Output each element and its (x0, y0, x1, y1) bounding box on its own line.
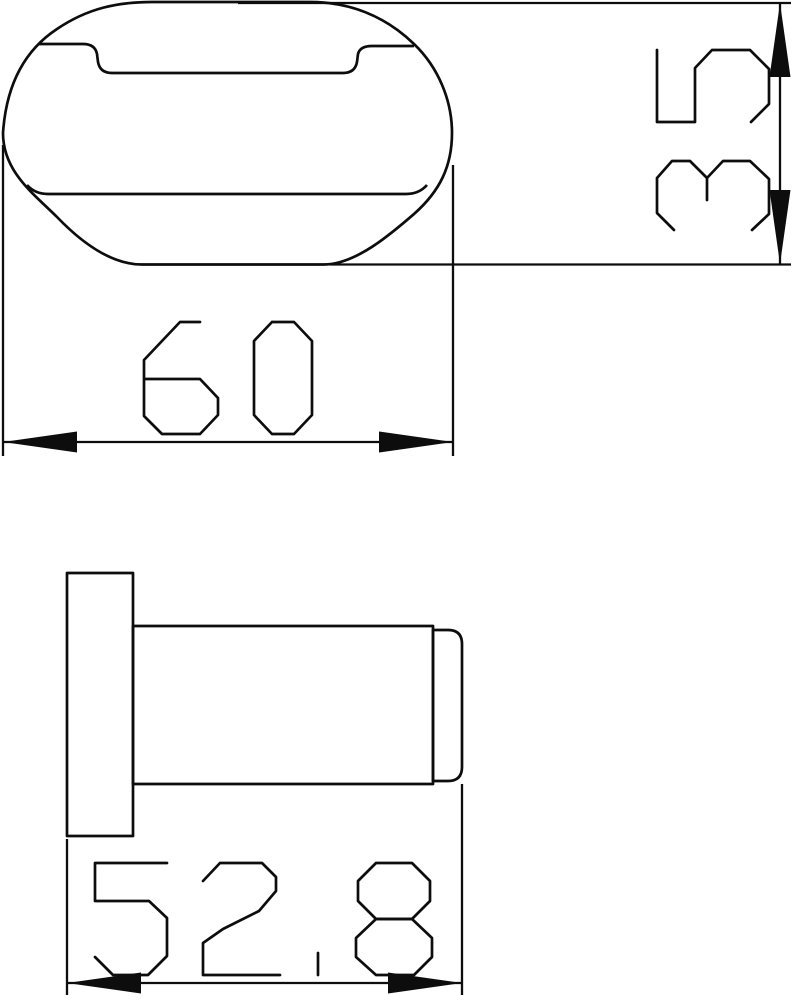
side-view-wall-plate (67, 573, 133, 836)
height-arrow-bottom-icon (770, 190, 791, 264)
width-arrow-left-icon (3, 432, 77, 453)
dimension-depth: 52.8 (67, 784, 462, 995)
drawing-canvas: 60 35 52.8 (0, 0, 794, 1000)
dim-label-width (144, 322, 312, 434)
side-view-end-cap (433, 630, 462, 781)
dimension-height: 35 (238, 3, 791, 265)
width-arrow-right-icon (379, 432, 453, 453)
dim-label-height (657, 50, 769, 230)
side-view (67, 573, 462, 836)
technical-drawing: 60 35 52.8 (0, 0, 794, 1000)
top-view-outline (3, 2, 452, 265)
top-view (3, 2, 452, 265)
top-view-notch-line (39, 44, 414, 73)
dim-label-depth (95, 863, 432, 975)
dimension-width: 60 (3, 145, 453, 456)
side-view-arm (133, 626, 433, 784)
top-view-edge-line (27, 185, 427, 194)
height-arrow-top-icon (770, 3, 791, 77)
